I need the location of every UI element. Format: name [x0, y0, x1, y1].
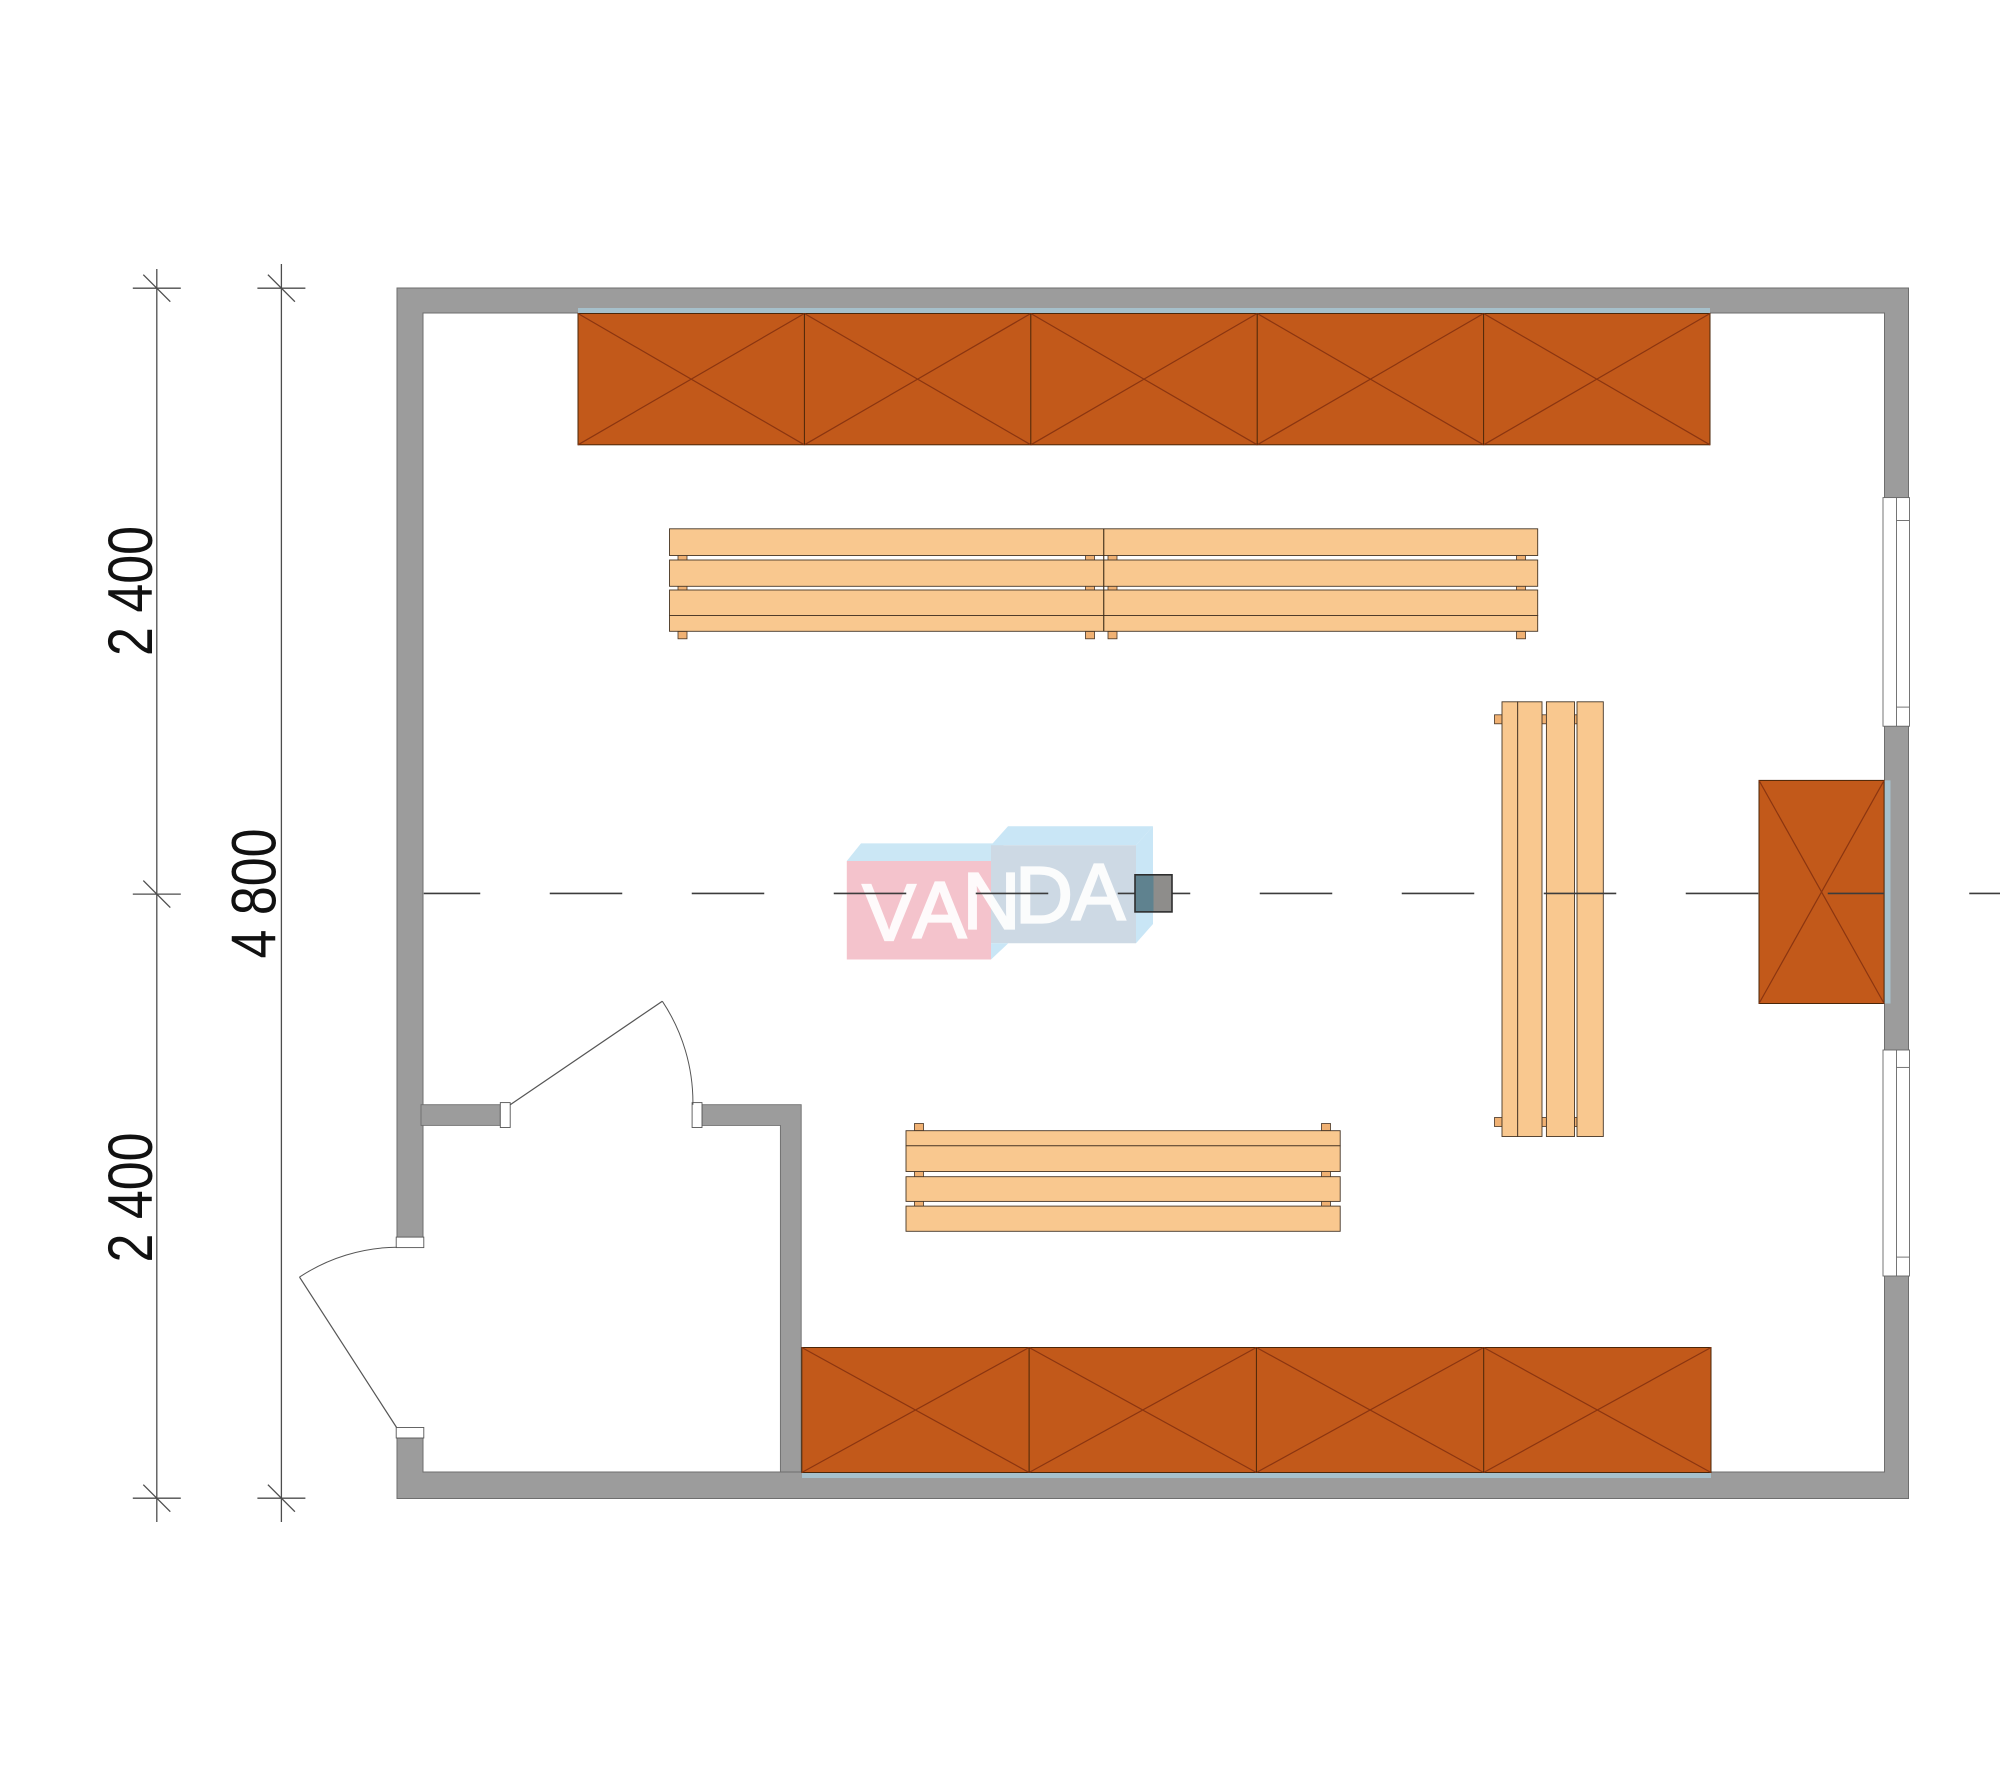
- svg-text:2 400: 2 400: [96, 1133, 166, 1263]
- svg-text:A: A: [1072, 848, 1126, 937]
- svg-text:N: N: [963, 857, 1021, 946]
- svg-text:A: A: [913, 866, 967, 955]
- svg-text:D: D: [1015, 851, 1073, 940]
- svg-text:4 800: 4 800: [220, 829, 290, 959]
- svg-text:2 400: 2 400: [96, 526, 166, 656]
- svg-text:V: V: [862, 868, 916, 957]
